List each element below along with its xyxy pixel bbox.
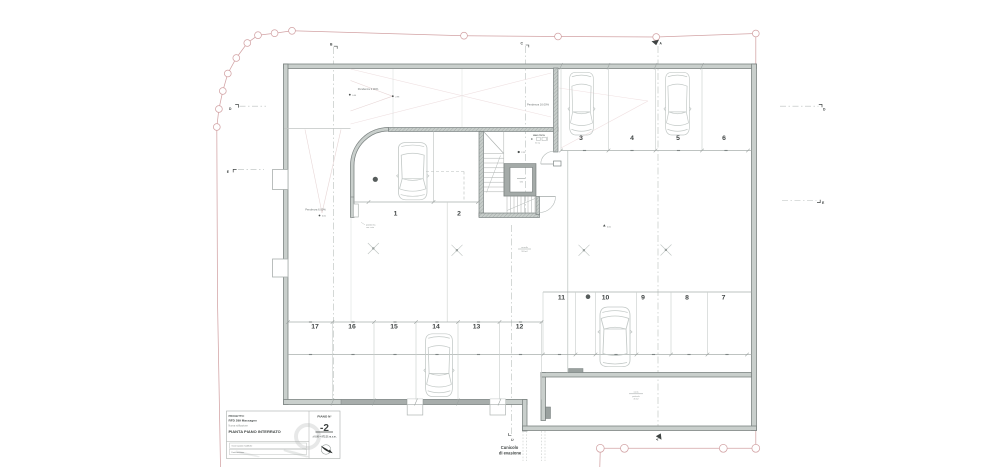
svg-text:uscita: uscita — [634, 391, 639, 394]
svg-text:VANO TECN.: VANO TECN. — [533, 134, 546, 137]
svg-text:corsello: corsello — [521, 246, 528, 249]
svg-text:PROGETTO:: PROGETTO: — [229, 414, 245, 418]
svg-text:1: 1 — [394, 211, 398, 218]
svg-text:RFD 299 Massagno: RFD 299 Massagno — [229, 418, 257, 422]
svg-text:Nuova edificazione: Nuova edificazione — [229, 426, 249, 428]
svg-text:13: 13 — [473, 324, 481, 331]
svg-text:3: 3 — [579, 135, 583, 142]
svg-text:carr. auto: carr. auto — [366, 226, 374, 229]
svg-text:15: 15 — [390, 324, 398, 331]
svg-text:593 m2: 593 m2 — [521, 251, 527, 253]
svg-text:14: 14 — [432, 324, 440, 331]
svg-text:12: 12 — [516, 324, 524, 331]
svg-text:Pendenza 3.00%: Pendenza 3.00% — [358, 87, 379, 91]
svg-text:2: 2 — [457, 211, 461, 218]
svg-text:PIANO N°: PIANO N° — [317, 414, 332, 418]
svg-text:di evasione: di evasione — [499, 450, 522, 455]
svg-text:8: 8 — [685, 295, 689, 302]
svg-text:7: 7 — [722, 295, 726, 302]
svg-text:PIANTA PIANO INTERRATO: PIANTA PIANO INTERRATO — [229, 429, 281, 434]
svg-text:9: 9 — [641, 295, 645, 302]
svg-text:± 0.00 = 972.31 m.s.m.: ± 0.00 = 972.31 m.s.m. — [313, 436, 337, 438]
svg-text:10: 10 — [602, 295, 610, 302]
svg-text:6: 6 — [722, 135, 726, 142]
svg-text:Osservazioni modifiche: Osservazioni modifiche — [232, 446, 254, 448]
svg-text:11: 11 — [558, 295, 565, 302]
svg-text:4: 4 — [630, 135, 634, 142]
svg-text:pedonale: pedonale — [632, 396, 639, 398]
svg-text:Pendenza 16.00%: Pendenza 16.00% — [527, 103, 550, 107]
svg-text:32 mq: 32 mq — [535, 142, 540, 144]
svg-text:Pendenza 6.00%: Pendenza 6.00% — [305, 208, 326, 212]
svg-text:17: 17 — [311, 324, 319, 331]
svg-text:Data revisione: Data revisione — [232, 451, 246, 454]
svg-text:piattaforma: piattaforma — [366, 224, 376, 227]
svg-text:630: 630 — [520, 182, 523, 184]
svg-text:45 m2: 45 m2 — [634, 399, 639, 401]
svg-text:16: 16 — [348, 324, 356, 331]
svg-text:5: 5 — [676, 135, 680, 142]
